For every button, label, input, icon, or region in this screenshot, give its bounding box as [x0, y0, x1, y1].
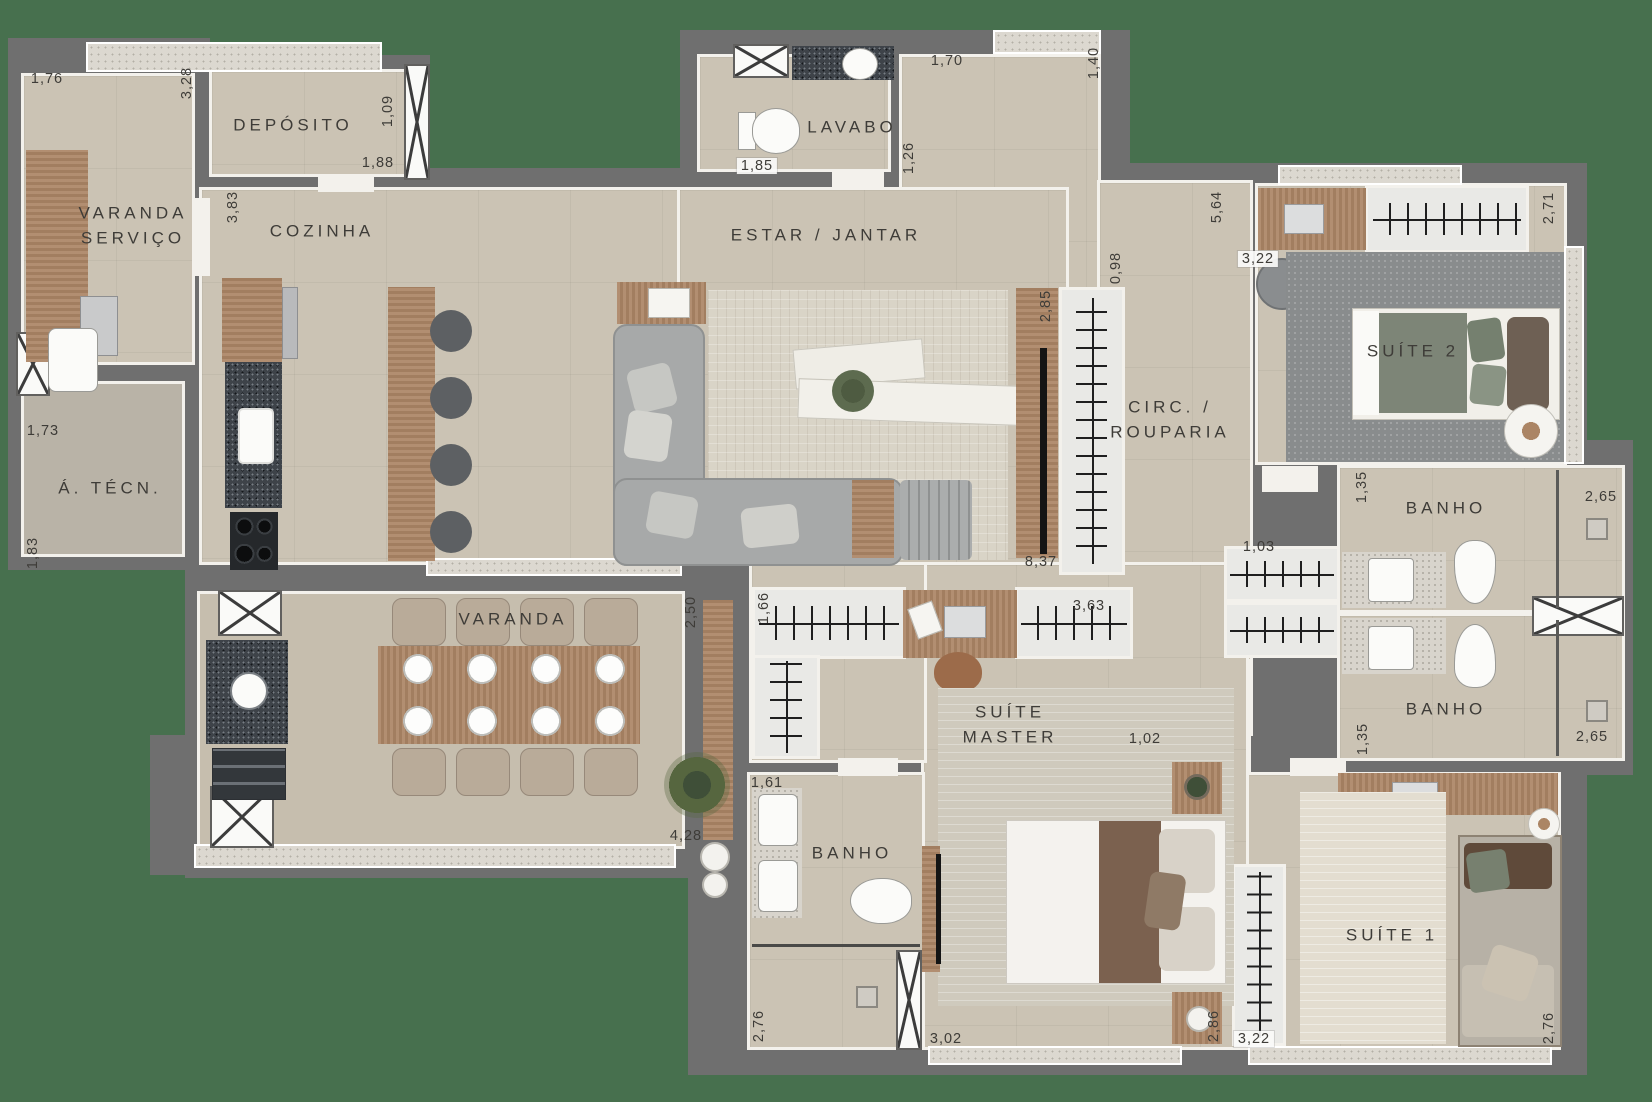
dimension-label: 2,76: [1541, 1012, 1557, 1044]
dimension-label: 5,64: [1209, 191, 1225, 223]
chair: [392, 748, 446, 796]
lavabo-toilet: [738, 108, 800, 152]
shower-glass-banho2: [1556, 620, 1559, 756]
floor-plan: VARANDASERVIÇODEPÓSITOCOZINHALAVABOESTAR…: [0, 0, 1652, 1102]
desk-chair: [934, 652, 982, 692]
bedside-lamp: [1528, 808, 1560, 840]
room-label: SUÍTE 1: [1346, 924, 1438, 949]
bed-master: [1006, 820, 1226, 984]
chair: [520, 748, 574, 796]
tv: [1040, 348, 1047, 554]
sink: [758, 860, 798, 912]
closet-master-left: [755, 658, 817, 756]
laptop: [1284, 204, 1324, 234]
dimension-label: 0,98: [1108, 252, 1124, 284]
window-suite2-top: [1280, 167, 1460, 183]
dimension-label: 1,35: [1355, 723, 1371, 755]
room-label: SUÍTE 2: [1367, 340, 1459, 365]
coffee-table: [797, 378, 1018, 426]
sink: [758, 794, 798, 846]
closet-suite1: [1235, 867, 1283, 1043]
pillow: [1469, 363, 1507, 406]
dimension-label: 3,22: [1234, 1031, 1274, 1047]
dimension-label: 8,37: [1025, 554, 1057, 570]
room-label: CIRC. /ROUPARIA: [1110, 395, 1230, 444]
plant-centerpiece: [832, 370, 874, 412]
varanda-drawers: [212, 748, 286, 800]
pillow: [1507, 317, 1549, 411]
dimension-label: 1,66: [756, 592, 772, 624]
chair: [584, 748, 638, 796]
pillow: [1466, 317, 1506, 363]
window-suite2-right: [1566, 248, 1582, 462]
pillow: [1143, 871, 1186, 931]
stool: [430, 444, 472, 486]
dimension-label: 2,65: [1576, 729, 1608, 745]
room-label: ESTAR / JANTAR: [731, 224, 921, 249]
dimension-label: 2,71: [1541, 192, 1557, 224]
rug-suite1: [1300, 792, 1446, 1044]
room-label: COZINHA: [270, 220, 375, 245]
stool: [430, 377, 472, 419]
shower-drain: [1586, 700, 1608, 722]
dimension-label: 1,88: [362, 155, 394, 171]
dimension-label: 2,85: [1038, 290, 1054, 322]
vase: [702, 872, 728, 898]
room-label: VARANDA: [459, 608, 568, 633]
dimension-label: 1,26: [901, 142, 917, 174]
tv-panel: [1016, 288, 1058, 558]
dimension-label: 3,28: [179, 67, 195, 99]
sofa-pillow: [623, 409, 673, 463]
floor-area-tecnica: [24, 384, 182, 554]
dimension-label: 1,03: [1243, 539, 1275, 555]
closet-master-top: [755, 590, 903, 656]
stool: [430, 511, 472, 553]
shower-glass-banho1: [1556, 470, 1559, 608]
dimension-label: 1,83: [25, 537, 41, 569]
dimension-label: 2,76: [751, 1010, 767, 1042]
door-deposito: [318, 176, 374, 192]
room-label: Á. TÉCN.: [58, 477, 161, 502]
plant-pot: [1184, 774, 1210, 800]
window-suite1-bottom: [1250, 1048, 1550, 1063]
dimension-label: 1,35: [1354, 471, 1370, 503]
room-label: DEPÓSITO: [233, 114, 353, 139]
dimension-label: 2,65: [1585, 489, 1617, 505]
kitchen-island: [388, 287, 435, 561]
vase: [700, 842, 730, 872]
place-settings: [386, 650, 634, 688]
pillow: [1465, 848, 1510, 893]
room-label: BANHO: [1406, 698, 1486, 723]
sofa-cabinet: [852, 480, 894, 558]
laptop: [944, 606, 986, 638]
kitchen-fridge: [282, 287, 298, 359]
dimension-label: 1,61: [751, 775, 783, 791]
dimension-label: 2,50: [683, 596, 699, 628]
cooktop: [230, 512, 278, 570]
dimension-label: 1,40: [1086, 47, 1102, 79]
kitchen-cabinet: [222, 278, 282, 362]
bedside-lamp: [1504, 404, 1558, 458]
chair: [456, 748, 510, 796]
toilet-master: [850, 878, 912, 924]
laundry-sink: [48, 328, 98, 392]
dimension-label: 4,28: [670, 828, 702, 844]
door-banho-master: [838, 758, 898, 776]
tv: [936, 854, 941, 964]
sofa-pillow: [740, 503, 800, 549]
dimension-label: 3,83: [225, 191, 241, 223]
door-cozinha-servico: [194, 198, 210, 276]
bench: [900, 480, 972, 560]
dimension-label: 3,63: [1073, 598, 1105, 614]
window-suite-master-bottom: [930, 1048, 1180, 1063]
shaft-deposito: [404, 64, 430, 180]
shaft-banhos-direita: [1532, 596, 1624, 636]
kitchen-sink: [238, 408, 274, 464]
room-label: LAVABO: [807, 116, 897, 141]
dimension-label: 2,86: [1206, 1010, 1222, 1042]
dimension-label: 3,22: [1238, 251, 1278, 267]
lavabo-sink: [842, 48, 878, 80]
sink-banho2: [1368, 626, 1414, 670]
shower-drain: [856, 986, 878, 1008]
closet-suite2: [1368, 188, 1526, 250]
entry-threshold: [995, 32, 1099, 52]
stool: [430, 310, 472, 352]
shaft-varanda-grill: [218, 590, 282, 636]
shaft-lavabo: [733, 44, 789, 78]
room-label: VARANDASERVIÇO: [79, 201, 188, 250]
window-varanda-servico: [88, 44, 380, 70]
dimension-label: 1,73: [27, 423, 59, 439]
chair: [584, 598, 638, 646]
place-settings: [386, 702, 634, 740]
sofa-pillow: [645, 490, 700, 540]
window-varanda: [196, 846, 674, 866]
room-label: SUÍTEMASTER: [963, 700, 1058, 749]
dimension-label: 1,09: [380, 95, 396, 127]
door-lavabo: [832, 170, 884, 188]
open-book: [648, 288, 690, 318]
shaft-banho-master: [896, 950, 922, 1050]
dimension-label: 1,02: [1129, 731, 1161, 747]
sink-banho1: [1368, 558, 1414, 602]
dimension-label: 1,70: [931, 53, 963, 69]
closet-linen-2: [1227, 605, 1337, 655]
varanda-sink: [230, 672, 268, 710]
shower-drain: [1586, 518, 1608, 540]
palm-plant: [664, 752, 730, 818]
dimension-label: 1,76: [31, 71, 63, 87]
room-label: BANHO: [1406, 497, 1486, 522]
chair: [392, 598, 446, 646]
door-suite2: [1262, 466, 1318, 492]
dimension-label: 3,02: [930, 1031, 962, 1047]
dimension-label: 1,85: [737, 158, 777, 174]
room-label: BANHO: [812, 842, 892, 867]
closet-linen-1: [1227, 549, 1337, 599]
shower-divider: [752, 944, 920, 947]
